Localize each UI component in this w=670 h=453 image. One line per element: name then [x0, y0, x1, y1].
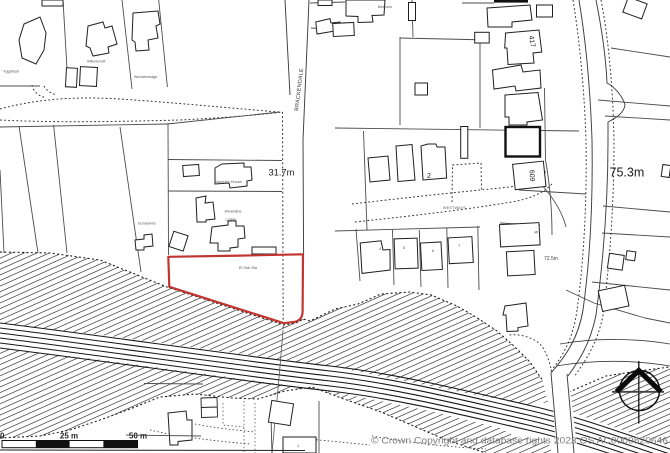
- svg-text:31.7m: 31.7m: [269, 168, 295, 178]
- svg-text:72.5m: 72.5m: [544, 256, 558, 262]
- svg-text:Sundowns: Sundowns: [138, 222, 156, 226]
- svg-text:50 m: 50 m: [129, 432, 147, 441]
- svg-text:2: 2: [427, 173, 431, 180]
- svg-text:Lodge: Lodge: [226, 217, 237, 221]
- svg-text:Amandine: Amandine: [225, 210, 242, 214]
- svg-text:Sapphire House: Sapphire House: [215, 180, 242, 184]
- svg-text:Yggdrasil: Yggdrasil: [3, 70, 19, 74]
- svg-text:El Sub Sta: El Sub Sta: [239, 266, 258, 270]
- svg-text:609: 609: [528, 170, 536, 182]
- svg-text:0: 0: [0, 432, 5, 441]
- svg-text:© Crown Copyright and database: © Crown Copyright and database rights 20…: [371, 436, 668, 446]
- svg-text:Beacons: Beacons: [378, 5, 392, 9]
- svg-text:Woodenlodge: Woodenlodge: [134, 75, 157, 79]
- svg-text:WESTWAYS: WESTWAYS: [443, 206, 466, 210]
- svg-text:75.3m: 75.3m: [610, 166, 645, 180]
- svg-text:Willowcroft: Willowcroft: [87, 60, 106, 64]
- svg-text:25 m: 25 m: [60, 432, 78, 441]
